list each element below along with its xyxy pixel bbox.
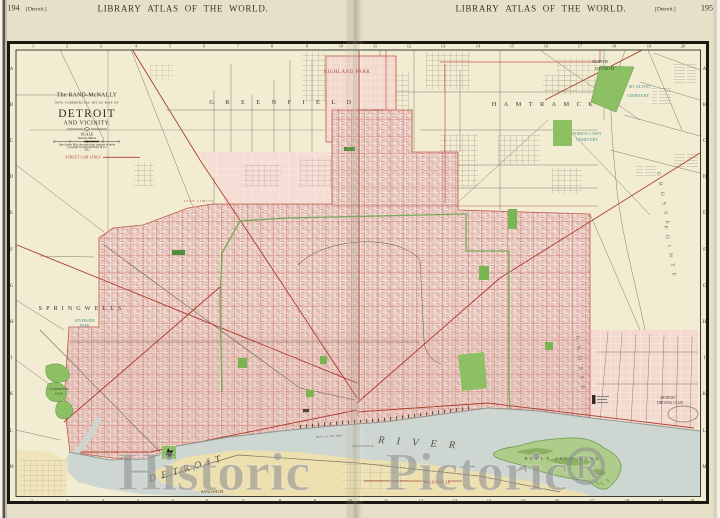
svg-text:The RAND-McNALLY: The RAND-McNALLY — [57, 93, 118, 99]
svg-text:STREET CAR LINES: STREET CAR LINES — [65, 156, 101, 160]
svg-text:E: E — [703, 211, 706, 216]
svg-text:GREENFIELD: GREENFIELD — [209, 99, 362, 106]
svg-text:17: 17 — [590, 498, 595, 503]
svg-text:K: K — [703, 392, 707, 397]
svg-text:E: E — [10, 211, 13, 216]
svg-text:DETROIT: DETROIT — [660, 396, 676, 400]
svg-text:SPRINGWELLS: SPRINGWELLS — [39, 305, 126, 312]
svg-text:1: 1 — [32, 44, 34, 49]
svg-text:B: B — [10, 103, 13, 108]
svg-text:MT OLIVET: MT OLIVET — [629, 84, 652, 89]
svg-text:18: 18 — [612, 44, 617, 49]
svg-text:CITY LIMITS: CITY LIMITS — [184, 199, 214, 203]
svg-text:RIVERSIDE: RIVERSIDE — [75, 319, 96, 323]
svg-text:NORTH: NORTH — [592, 59, 608, 64]
svg-text:CEMETERY: CEMETERY — [576, 137, 598, 142]
svg-text:12: 12 — [407, 44, 412, 49]
svg-text:19: 19 — [659, 498, 664, 503]
svg-text:195: 195 — [701, 4, 713, 13]
svg-text:HAMTRAMCK: HAMTRAMCK — [492, 101, 600, 108]
svg-text:20: 20 — [690, 498, 695, 503]
svg-text:H: H — [10, 320, 14, 325]
svg-text:LIBRARY ATLAS OF THE WORLD: LIBRARY ATLAS OF THE WORLD. — [456, 4, 627, 14]
svg-text:M: M — [702, 465, 707, 470]
svg-text:18: 18 — [625, 498, 630, 503]
svg-text:H: H — [703, 320, 707, 325]
svg-text:DRIVING CLUB: DRIVING CLUB — [657, 401, 683, 405]
svg-text:194: 194 — [8, 4, 20, 13]
svg-text:CEMETERY: CEMETERY — [627, 93, 649, 98]
svg-text:1: 1 — [31, 498, 33, 503]
svg-text:L: L — [703, 429, 706, 434]
svg-text:1912: 1912 — [84, 148, 90, 151]
svg-text:2: 2 — [66, 44, 68, 49]
svg-text:G: G — [703, 284, 707, 289]
svg-text:[Detroit.]: [Detroit.] — [655, 7, 676, 13]
svg-text:15: 15 — [510, 44, 515, 49]
svg-text:17: 17 — [578, 44, 583, 49]
svg-text:[Detroit.]: [Detroit.] — [26, 7, 47, 13]
svg-text:C: C — [10, 139, 13, 144]
svg-text:WOODMERE: WOODMERE — [49, 387, 69, 391]
svg-text:19: 19 — [647, 44, 652, 49]
svg-text:14: 14 — [476, 44, 481, 49]
svg-text:C: C — [703, 139, 706, 144]
svg-text:DETROIT: DETROIT — [58, 108, 116, 120]
svg-text:B: B — [703, 103, 706, 108]
svg-text:G: G — [10, 284, 14, 289]
svg-text:A: A — [703, 67, 707, 72]
svg-text:NEW COMMERCIAL ATLAS MAP OF: NEW COMMERCIAL ATLAS MAP OF — [55, 101, 119, 105]
svg-text:DETROIT: DETROIT — [595, 66, 615, 71]
svg-text:D: D — [703, 175, 707, 180]
svg-text:13: 13 — [441, 44, 446, 49]
svg-text:AND VICINITY.: AND VICINITY. — [64, 121, 111, 127]
svg-text:Historic: Historic — [118, 442, 310, 502]
svg-text:LIBRARY ATLAS OF THE WORLD: LIBRARY ATLAS OF THE WORLD. — [98, 4, 269, 14]
svg-text:M: M — [9, 465, 14, 470]
svg-text:F: F — [703, 248, 706, 253]
svg-text:11: 11 — [373, 44, 377, 49]
svg-text:2: 2 — [66, 498, 68, 503]
svg-text:Statute Miles: Statute Miles — [78, 136, 97, 140]
svg-text:L: L — [10, 429, 13, 434]
svg-text:20: 20 — [681, 44, 686, 49]
svg-text:F: F — [10, 248, 13, 253]
svg-text:D: D — [10, 175, 14, 180]
svg-text:PARK: PARK — [80, 324, 90, 328]
svg-text:K: K — [10, 392, 14, 397]
svg-text:A: A — [10, 67, 14, 72]
svg-text:CEM.: CEM. — [55, 392, 63, 396]
svg-text:Pictoric: Pictoric — [385, 442, 568, 502]
svg-text:16: 16 — [544, 44, 549, 49]
svg-text:FOREST LAWN: FOREST LAWN — [573, 131, 602, 136]
svg-text:10: 10 — [339, 44, 344, 49]
